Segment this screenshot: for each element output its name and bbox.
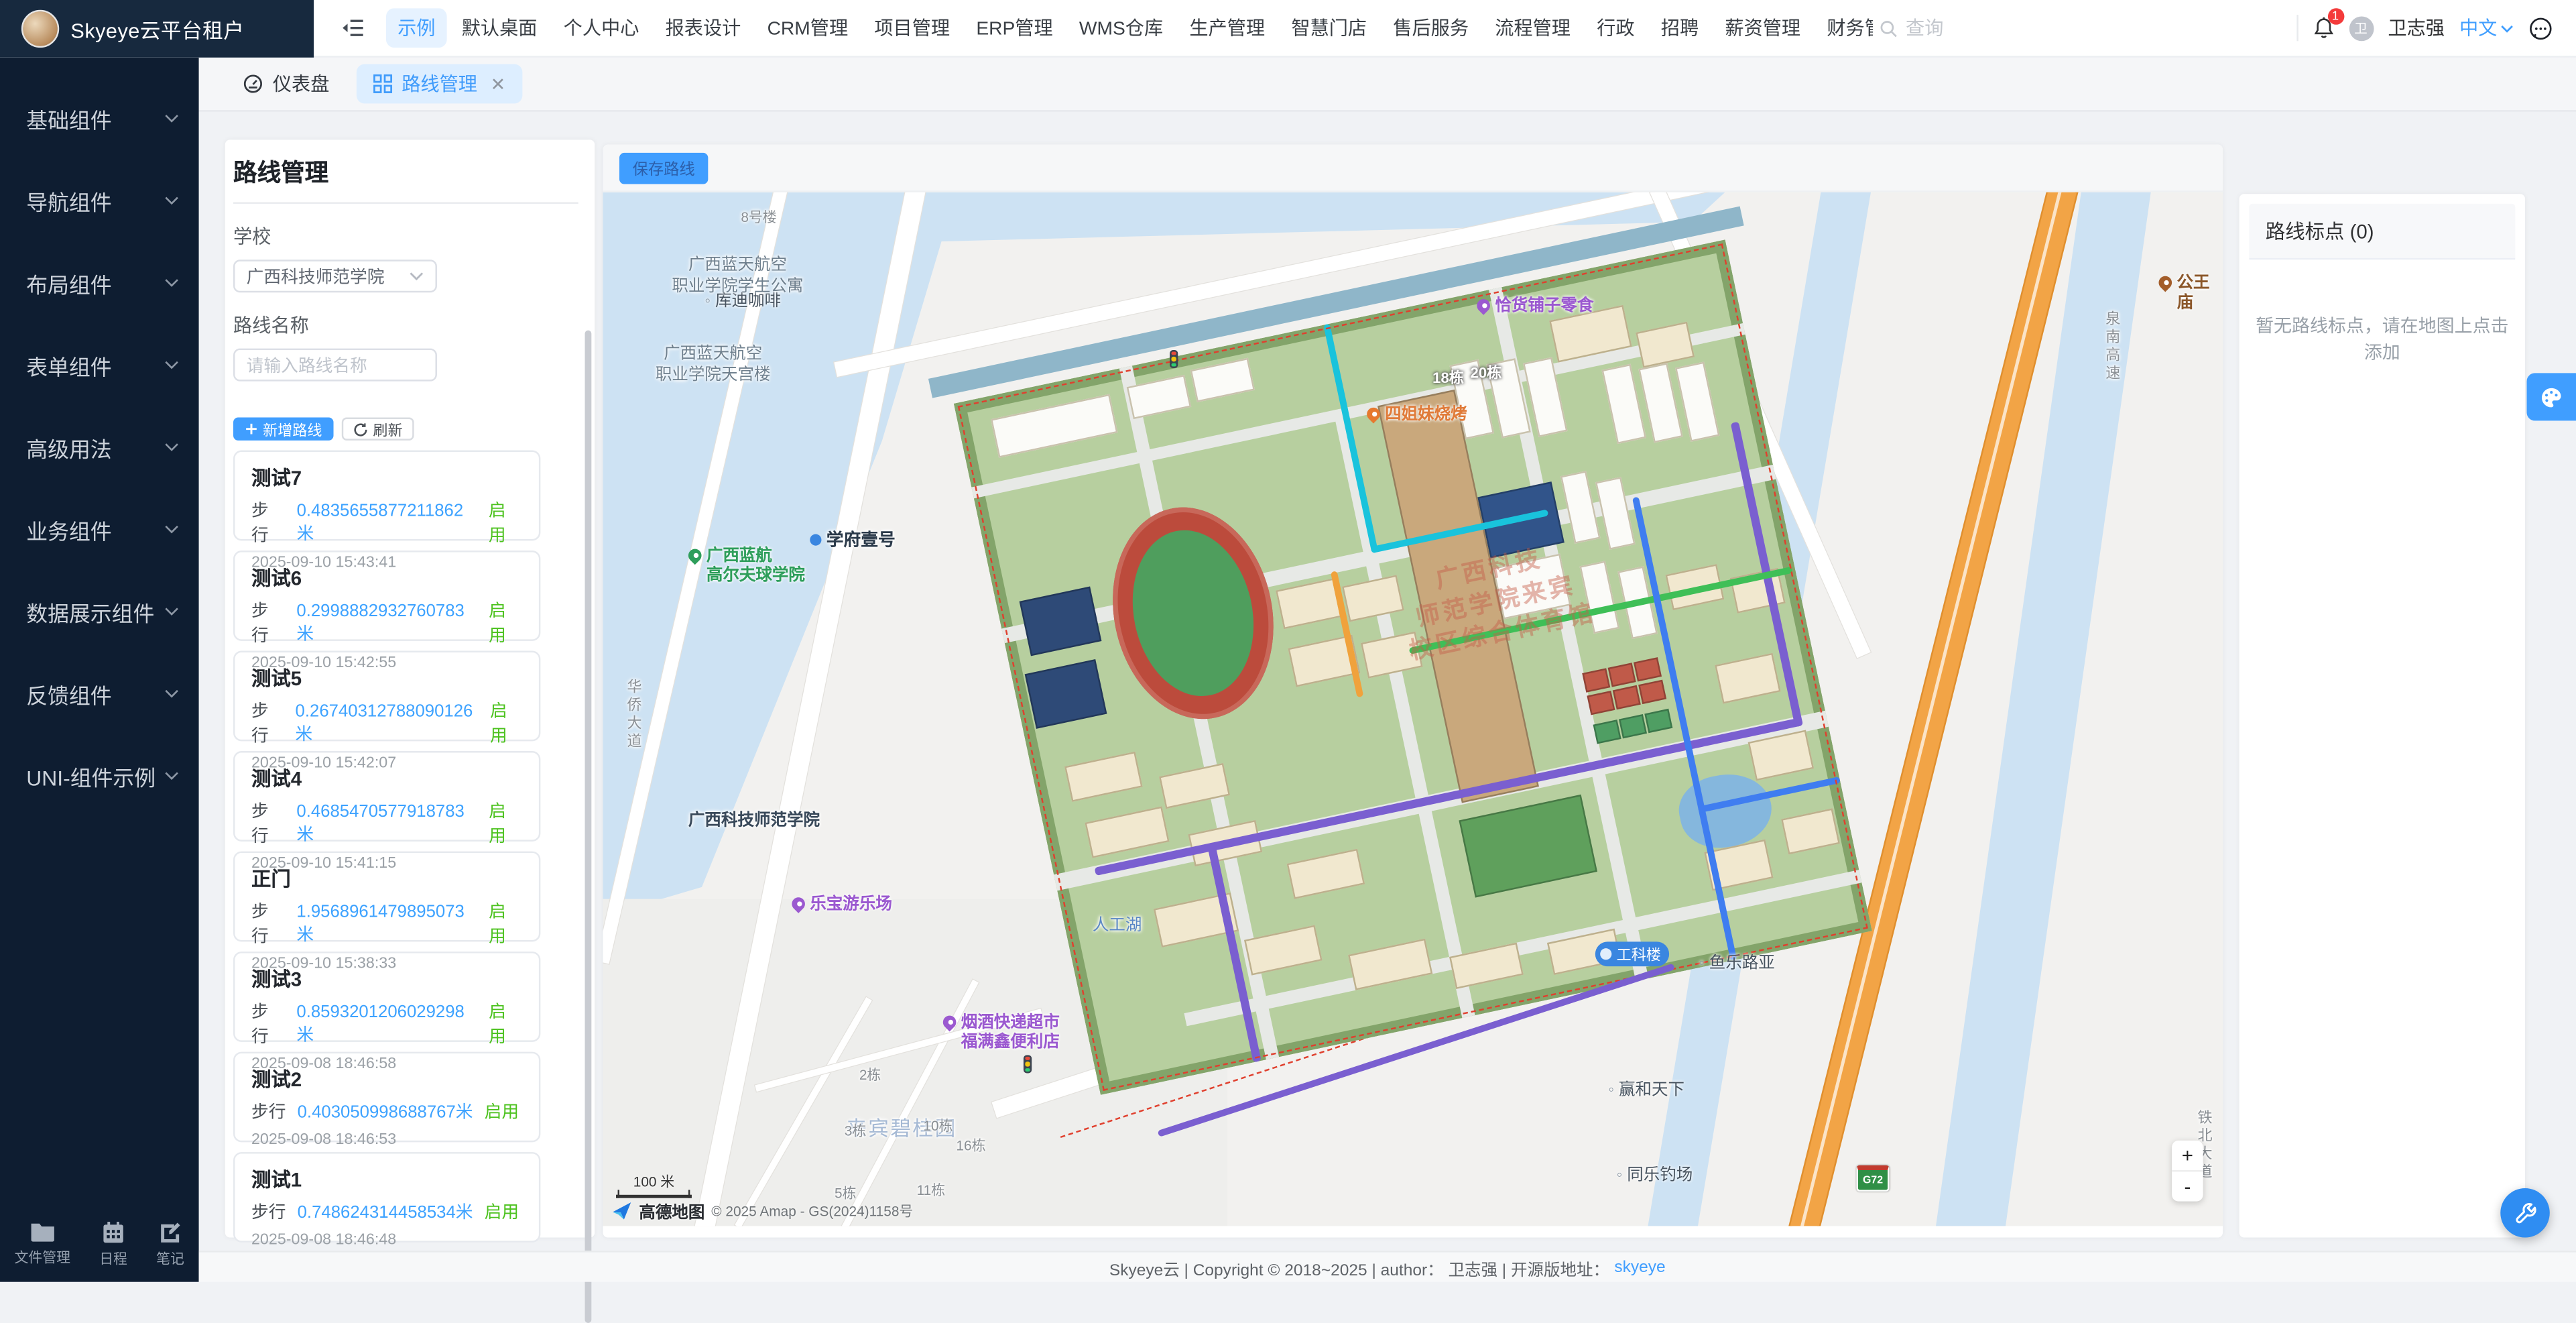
chevron-down-icon	[164, 770, 179, 781]
refresh-button[interactable]: 刷新	[342, 418, 414, 441]
route-name-label: 路线名称	[233, 312, 595, 339]
page-footer: Skyeye云 | Copyright © 2018~2025 | author…	[199, 1251, 2576, 1282]
building-number-18栋: 18栋	[1432, 369, 1464, 389]
poi-pin-icon	[940, 1013, 959, 1032]
wrench-icon	[2513, 1200, 2538, 1225]
poi-赢和天下: 赢和天下	[1608, 1080, 1684, 1101]
sidebar-item-高级用法[interactable]: 高级用法	[0, 406, 199, 488]
top-menu: 示例默认桌面个人中心报表设计CRM管理项目管理ERP管理WMS仓库生产管理智慧门…	[386, 8, 1873, 48]
divider	[2296, 15, 2297, 41]
nav-item-售后服务[interactable]: 售后服务	[1382, 8, 1480, 48]
building-number-16栋: 16栋	[956, 1137, 985, 1155]
campus-building	[1638, 680, 1666, 704]
sidebar-footer-label: 日程	[99, 1249, 127, 1269]
sidebar-item-表单组件[interactable]: 表单组件	[0, 324, 199, 406]
route-name: 测试1	[251, 1165, 522, 1194]
route-status-badge: 启用	[485, 1200, 519, 1224]
nav-item-CRM管理[interactable]: CRM管理	[755, 8, 859, 48]
school-select[interactable]: 广西科技师范学院	[233, 260, 437, 292]
tab-仪表盘[interactable]: 仪表盘	[227, 64, 346, 104]
tools-wrench-button[interactable]	[2500, 1188, 2550, 1238]
route-mode: 步行	[251, 1200, 286, 1224]
poi-学府壹号: 学府壹号	[810, 531, 895, 553]
route-points-empty-text: 暂无路线标点，请在地图上点击添加	[2249, 312, 2515, 365]
chevron-down-icon	[164, 606, 179, 616]
chevron-down-icon	[164, 278, 179, 288]
route-distance: 0.748624314458534米	[298, 1200, 473, 1224]
sidebar-item-label: UNI-组件示例	[26, 760, 164, 792]
chevron-down-icon	[409, 271, 424, 281]
map-attribution: 高德地图 © 2025 Amap - GS(2024)1158号	[611, 1198, 914, 1223]
route-mode: 步行	[251, 1100, 286, 1125]
poi-pin-icon	[789, 895, 808, 913]
campus-building	[991, 394, 1118, 458]
panel-scrollbar[interactable]	[585, 331, 592, 1323]
divider	[233, 202, 578, 203]
save-route-button[interactable]: 保存路线	[619, 152, 708, 184]
map-zoom-control: + -	[2172, 1141, 2203, 1202]
campus-building	[1613, 685, 1641, 709]
campus-building	[1715, 653, 1781, 704]
route-status-badge: 启用	[489, 799, 522, 848]
building-number-3栋: 3栋	[845, 1123, 866, 1141]
river-band-2	[1928, 192, 2156, 1226]
map-toolbar: 保存路线	[603, 145, 2223, 192]
route-mode: 步行	[251, 498, 285, 548]
chevron-down-icon	[2500, 24, 2514, 32]
route-status-badge: 启用	[490, 699, 522, 748]
top-navbar: Skyeye云平台租户 示例默认桌面个人中心报表设计CRM管理项目管理ERP管理…	[0, 0, 2576, 58]
poi-鱼乐路亚: 鱼乐路亚	[1699, 954, 1775, 975]
zoom-out-button[interactable]: -	[2172, 1171, 2203, 1201]
sidebar-item-label: 高级用法	[26, 431, 164, 463]
language-switcher[interactable]: 中文	[2459, 15, 2514, 41]
sidebar-footer-文件管理[interactable]: 文件管理	[15, 1221, 70, 1269]
nav-item-流程管理[interactable]: 流程管理	[1483, 8, 1582, 48]
campus-building	[1064, 752, 1143, 802]
campus-building	[1459, 795, 1597, 898]
poi-人工湖: 人工湖	[1093, 915, 1142, 937]
campus-building	[1025, 659, 1107, 729]
note-icon	[159, 1221, 182, 1244]
sidebar-footer-笔记[interactable]: 笔记	[156, 1221, 184, 1269]
poi-乐宝游乐场[interactable]: 乐宝游乐场	[792, 896, 892, 915]
route-distance: 0.4685470577918783米	[296, 801, 477, 846]
chevron-down-icon	[164, 689, 179, 699]
chevron-down-icon	[164, 113, 179, 123]
nav-item-项目管理[interactable]: 项目管理	[863, 8, 961, 48]
sidebar-item-label: 布局组件	[26, 267, 164, 298]
chevron-down-icon	[164, 278, 179, 288]
route-distance: 1.9568961479895073米	[296, 901, 477, 945]
poi-广西蓝天航空: 广西蓝天航空职业学院学生公寓	[672, 255, 803, 298]
chevron-down-icon	[164, 689, 179, 699]
sidebar-item-数据展示组件[interactable]: 数据展示组件	[0, 570, 199, 652]
poi-label: 广西蓝航高尔夫球学院	[707, 547, 805, 587]
campus-building	[1675, 361, 1720, 441]
building-number-2栋: 2栋	[859, 1067, 881, 1085]
logo-avatar	[21, 9, 59, 46]
sidebar-footer: 文件管理日程笔记	[0, 1221, 199, 1269]
campus-building	[1085, 806, 1169, 858]
poi-烟酒快递超市[interactable]: 烟酒快递超市福满鑫便利店	[943, 1014, 1060, 1053]
notification-bell-icon[interactable]: 1	[2313, 17, 2334, 40]
route-status-badge: 启用	[489, 498, 522, 548]
chevron-down-icon	[164, 442, 179, 452]
sidebar-item-label: 基础组件	[26, 103, 164, 134]
campus-building	[1587, 691, 1615, 715]
plus-icon	[245, 422, 258, 436]
poi-工科楼: 工科楼	[1595, 941, 1669, 966]
chevron-down-icon	[164, 360, 179, 370]
poi-四姐妹烧烤[interactable]: 四姐妹烧烤	[1367, 406, 1467, 425]
nav-item-默认桌面[interactable]: 默认桌面	[450, 8, 549, 48]
sidebar-item-label: 表单组件	[26, 349, 164, 381]
building-number-11栋: 11栋	[917, 1182, 945, 1200]
route-distance: 0.8593201206029298米	[296, 1002, 477, 1046]
chevron-down-icon	[164, 442, 179, 452]
sidebar-item-导航组件[interactable]: 导航组件	[0, 160, 199, 242]
sidebar-item-label: 业务组件	[26, 514, 164, 545]
sidebar-item-label: 反馈组件	[26, 678, 164, 709]
poi-广西科技师范学院: 广西科技师范学院	[688, 810, 820, 831]
campus-building	[1348, 939, 1432, 990]
tab-bar: 仪表盘路线管理✕	[199, 58, 2576, 112]
sidebar-footer-label: 笔记	[156, 1249, 184, 1269]
chevron-down-icon	[164, 196, 179, 206]
sidebar-collapse-icon[interactable]	[342, 18, 365, 38]
campus-building	[1020, 586, 1102, 656]
palette-icon	[2540, 386, 2563, 408]
chevron-down-icon	[164, 196, 179, 206]
map-card: 保存路线	[603, 145, 2223, 1238]
tab-label: 路线管理	[402, 70, 477, 97]
poi-广西蓝航[interactable]: 广西蓝航高尔夫球学院	[688, 547, 805, 587]
panel-title: 路线管理	[233, 139, 595, 202]
nav-item-行政[interactable]: 行政	[1585, 8, 1646, 48]
app-title: Skyeye云平台租户	[70, 12, 244, 44]
route-mode: 步行	[251, 799, 285, 848]
campus-building	[1608, 663, 1636, 687]
route-card-测试7[interactable]: 测试7步行0.4835655877211862米启用2025-09-10 15:…	[233, 451, 540, 541]
poi-label: 烟酒快递超市福满鑫便利店	[961, 1014, 1060, 1053]
sidebar-footer-日程[interactable]: 日程	[99, 1221, 127, 1269]
nav-item-招聘[interactable]: 招聘	[1650, 8, 1711, 48]
campus-building	[1619, 714, 1647, 738]
campus-building	[1287, 849, 1365, 899]
tab-路线管理[interactable]: 路线管理✕	[356, 64, 522, 104]
route-distance: 0.26740312788090126米	[296, 701, 479, 745]
nav-item-示例[interactable]: 示例	[386, 8, 447, 48]
poi-label: 四姐妹烧烤	[1385, 406, 1467, 425]
traffic-light-icon	[1024, 1055, 1032, 1073]
map-copyright: © 2025 Amap - GS(2024)1158号	[711, 1200, 913, 1220]
poi-广西蓝天航空: 广西蓝天航空职业学院天宫楼	[656, 343, 771, 386]
route-timestamp: 2025-09-08 18:46:53	[251, 1131, 522, 1149]
building-poi-icon	[810, 534, 821, 546]
sidebar-item-UNI-组件示例[interactable]: UNI-组件示例	[0, 735, 199, 817]
poi-pin-icon	[1364, 405, 1383, 424]
route-distance: 0.403050998688767米	[298, 1100, 473, 1125]
campus-building	[1644, 709, 1672, 733]
sidebar-item-基础组件[interactable]: 基础组件	[0, 77, 199, 160]
search-icon	[1880, 19, 1898, 37]
chevron-down-icon	[164, 524, 179, 534]
school-label: 学校	[233, 223, 595, 249]
username[interactable]: 卫志强	[2388, 15, 2445, 41]
school-select-value: 广西科技师范学院	[247, 264, 385, 288]
route-distance: 0.2998882932760783米	[296, 601, 477, 645]
footer-link[interactable]: skyeye	[1614, 1258, 1665, 1276]
route-status-badge: 启用	[489, 899, 522, 949]
user-avatar[interactable]: 卫	[2349, 15, 2374, 40]
search-placeholder: 查询	[1906, 15, 1943, 41]
nav-item-报表设计[interactable]: 报表设计	[654, 8, 752, 48]
campus-building	[1582, 668, 1610, 692]
search-input[interactable]: 查询	[1880, 15, 2073, 41]
route-distance: 0.4835655877211862米	[297, 500, 477, 544]
nav-item-ERP管理[interactable]: ERP管理	[965, 8, 1064, 48]
poi-恰货铺子零食[interactable]: 恰货铺子零食	[1477, 298, 1593, 317]
route-list: 测试7步行0.4835655877211862米启用2025-09-10 15:…	[233, 451, 595, 1243]
refresh-icon	[353, 422, 368, 437]
chevron-down-icon	[164, 360, 179, 370]
campus-building	[1634, 657, 1662, 681]
poi-公王庙[interactable]: 公王庙	[2158, 274, 2223, 314]
amap-brand[interactable]: 高德地图	[639, 1198, 704, 1223]
campus-building	[1190, 358, 1255, 402]
nav-item-个人中心[interactable]: 个人中心	[552, 8, 651, 48]
chevron-down-icon	[164, 113, 179, 123]
folder-icon	[29, 1221, 56, 1243]
route-name-input[interactable]: 请输入路线名称	[233, 349, 437, 382]
poi-label: 公王庙	[2176, 274, 2223, 314]
chevron-down-icon	[164, 606, 179, 616]
close-icon[interactable]: ✕	[491, 73, 506, 95]
route-timestamp: 2025-09-08 18:46:48	[251, 1231, 522, 1249]
zoom-in-button[interactable]: +	[2172, 1141, 2203, 1172]
route-mode: 步行	[251, 598, 285, 648]
traffic-light-icon	[1170, 350, 1178, 368]
sidebar-item-label: 数据展示组件	[26, 595, 164, 627]
route-line-cyan	[1323, 324, 1378, 553]
campus-building	[1127, 375, 1191, 419]
map-scale: 100 米	[616, 1171, 692, 1198]
chevron-down-icon	[164, 770, 179, 781]
nav-item-财务管理[interactable]: 财务管理	[1815, 8, 1873, 48]
amap-logo-icon	[611, 1200, 633, 1221]
sidebar-item-业务组件[interactable]: 业务组件	[0, 488, 199, 571]
route-name: 测试7	[251, 463, 522, 492]
road-label-泉南高速: 泉南高速	[2101, 310, 2121, 383]
route-card-测试1[interactable]: 测试1步行0.748624314458534米启用2025-09-08 18:4…	[233, 1152, 540, 1243]
campus-building	[1595, 477, 1636, 550]
sidebar-item-反馈组件[interactable]: 反馈组件	[0, 652, 199, 735]
grid-icon	[372, 74, 391, 93]
sidebar-footer-label: 文件管理	[15, 1247, 70, 1267]
navbar-right: 1 卫 卫志强 中文	[2296, 15, 2553, 41]
nav-item-智慧门店[interactable]: 智慧门店	[1280, 8, 1378, 48]
poi-pin-icon	[2156, 274, 2174, 292]
nav-item-薪资管理[interactable]: 薪资管理	[1713, 8, 1812, 48]
notification-badge: 1	[2327, 8, 2344, 25]
route-mode: 步行	[251, 899, 285, 949]
left-sidebar: 基础组件导航组件布局组件表单组件高级用法业务组件数据展示组件反馈组件UNI-组件…	[0, 58, 199, 1282]
footer-text: Skyeye云 | Copyright © 2018~2025 | author…	[1109, 1255, 1609, 1279]
building-number-10栋: 10栋	[923, 1118, 953, 1136]
map-canvas[interactable]: 广西科技师范学院来宾校区综合体育馆 公王庙恰货铺子零食四姐妹烧烤乐宝游乐场烟酒快…	[603, 192, 2223, 1226]
sidebar-item-布局组件[interactable]: 布局组件	[0, 241, 199, 324]
nav-item-生产管理[interactable]: 生产管理	[1178, 8, 1276, 48]
nav-item-WMS仓库[interactable]: WMS仓库	[1068, 8, 1175, 48]
message-icon[interactable]	[2528, 15, 2553, 40]
campus-building	[1636, 322, 1695, 368]
route-mode: 步行	[251, 699, 284, 748]
app-logo[interactable]: Skyeye云平台租户	[0, 0, 314, 57]
theme-palette-button[interactable]	[2526, 373, 2576, 420]
campus-building	[1244, 925, 1323, 975]
route-points-panel: 路线标点 (0) 暂无路线标点，请在地图上点击添加	[2240, 194, 2525, 1237]
route-status-badge: 启用	[489, 999, 522, 1049]
sidebar-item-label: 导航组件	[26, 185, 164, 217]
route-status-badge: 启用	[489, 598, 522, 648]
route-management-panel: 路线管理 学校 广西科技师范学院 路线名称 请输入路线名称 新增路线 刷新 测试…	[225, 139, 595, 1237]
poi-pin-icon	[1474, 296, 1493, 315]
tab-label: 仪表盘	[273, 70, 330, 97]
poi-pin-icon	[686, 547, 704, 565]
poi-label: 乐宝游乐场	[810, 896, 892, 915]
building-number-8号楼: 8号楼	[741, 209, 776, 227]
add-route-button[interactable]: 新增路线	[233, 418, 334, 441]
campus-building	[1276, 578, 1342, 629]
athletic-track	[1094, 492, 1292, 734]
highway-shield: G72	[1857, 1165, 1890, 1192]
campus-building	[1781, 808, 1840, 854]
campus-building	[1593, 720, 1621, 744]
poi-circle-icon	[1600, 948, 1611, 960]
poi-同乐钓场: 同乐钓场	[1617, 1165, 1693, 1187]
route-mode: 步行	[251, 999, 285, 1049]
poi-label: 恰货铺子零食	[1495, 298, 1593, 317]
dashboard-icon	[243, 74, 263, 93]
building-number-20栋: 20栋	[1471, 365, 1502, 384]
route-points-header: 路线标点 (0)	[2249, 204, 2515, 260]
road-label-华侨大道: 华侨大道	[623, 679, 642, 751]
route-status-badge: 启用	[485, 1100, 519, 1125]
sidebar-menu: 基础组件导航组件布局组件表单组件高级用法业务组件数据展示组件反馈组件UNI-组件…	[0, 58, 199, 817]
calendar-icon	[102, 1221, 125, 1244]
chevron-down-icon	[164, 524, 179, 534]
